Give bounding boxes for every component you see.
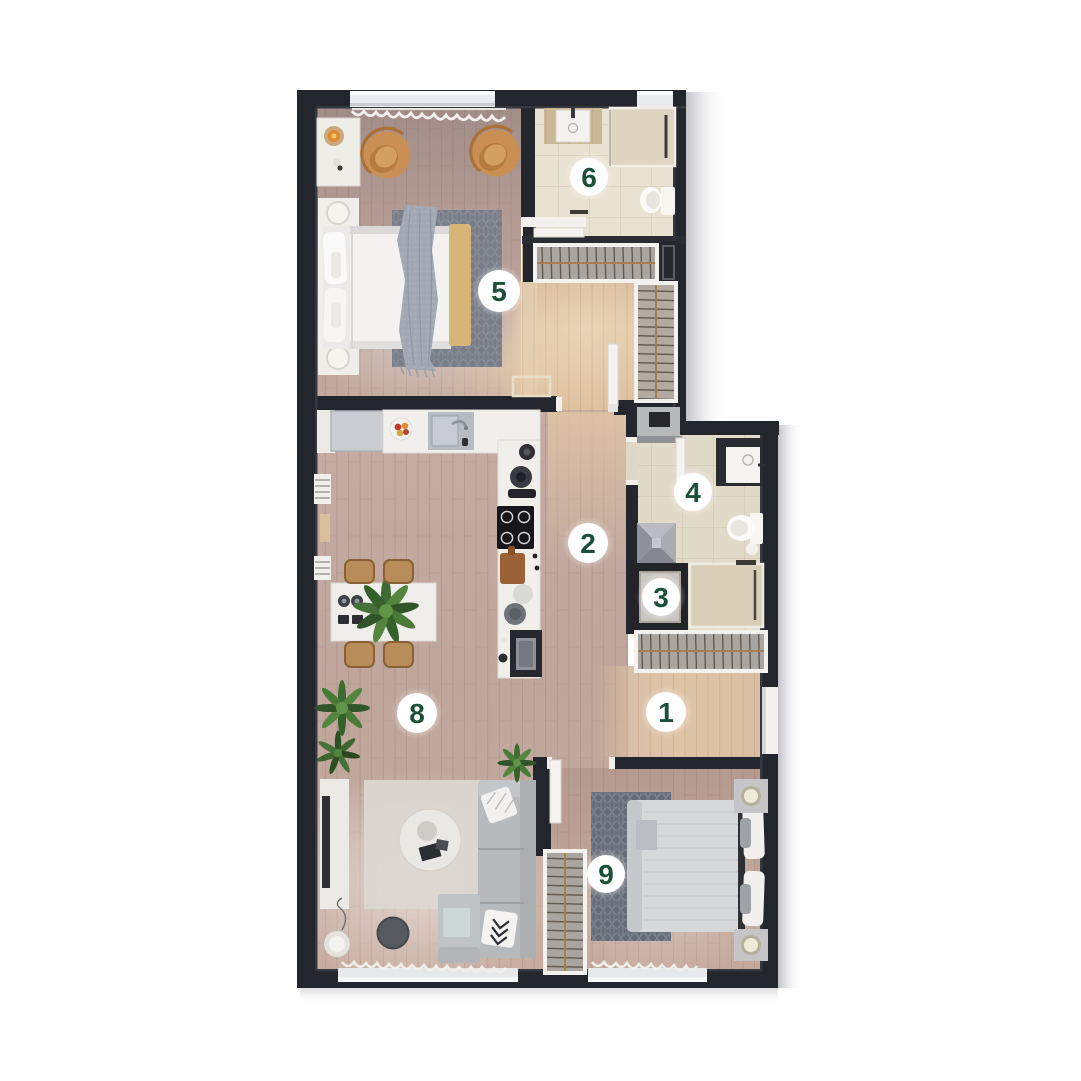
svg-text:4: 4 xyxy=(685,477,701,508)
svg-text:9: 9 xyxy=(598,859,614,890)
svg-text:3: 3 xyxy=(653,582,669,613)
svg-text:8: 8 xyxy=(409,698,425,729)
svg-text:1: 1 xyxy=(658,697,674,728)
svg-text:2: 2 xyxy=(580,528,596,559)
svg-text:5: 5 xyxy=(491,276,507,307)
svg-text:6: 6 xyxy=(581,162,597,193)
